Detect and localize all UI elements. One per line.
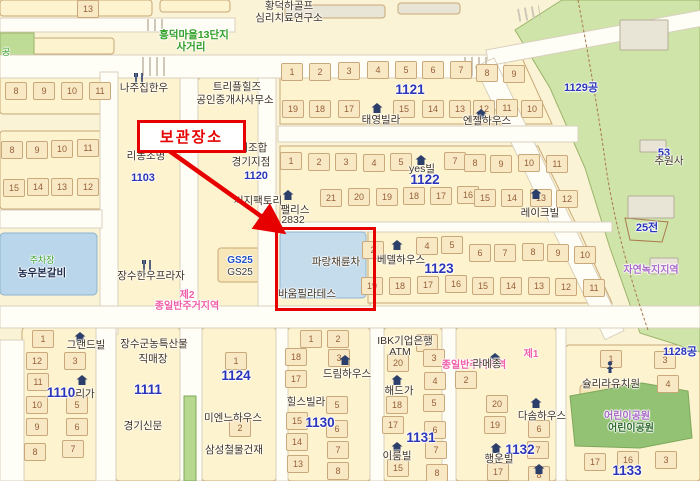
city-block bbox=[398, 3, 460, 14]
parcel-number: 5 bbox=[395, 61, 417, 79]
city-block bbox=[160, 0, 230, 12]
map-canvas[interactable]: 1389101189101115141312123456789191817151… bbox=[0, 0, 700, 481]
parcel-number: 18 bbox=[389, 277, 411, 295]
map-label: 태영빌라 bbox=[362, 115, 401, 126]
house-icon bbox=[392, 237, 403, 255]
parcel-number: 8 bbox=[464, 154, 486, 172]
parcel-number: 17 bbox=[487, 463, 509, 481]
parcel-number: 7 bbox=[62, 440, 84, 458]
parcel-number: 13 bbox=[528, 277, 550, 295]
parcel-number: 17 bbox=[417, 276, 439, 294]
parcel-number: 1 bbox=[281, 63, 303, 81]
map-label: 어린이공원 bbox=[604, 412, 650, 422]
crosswalk bbox=[142, 57, 168, 76]
parcel-number: 13 bbox=[287, 455, 309, 473]
parcel-number: 20 bbox=[348, 188, 370, 206]
map-label: 이룸빌 bbox=[383, 451, 412, 462]
parcel-number: 7 bbox=[450, 61, 472, 79]
map-label: 추원사 bbox=[655, 156, 684, 167]
parcel-number: 5 bbox=[326, 396, 348, 414]
building bbox=[620, 20, 668, 50]
parcel-number: 19 bbox=[282, 100, 304, 118]
map-label: 베델하우스 bbox=[377, 255, 425, 266]
parcel-number: 14 bbox=[27, 178, 49, 196]
parcel-number: 17 bbox=[382, 416, 404, 434]
map-label: 경기지점 bbox=[232, 157, 271, 168]
parcel-number: 3 bbox=[335, 153, 357, 171]
person-icon bbox=[605, 360, 615, 378]
map-label: 나주집한우 bbox=[120, 83, 168, 94]
parcel-number: 11 bbox=[546, 155, 568, 173]
parcel-number: 17 bbox=[285, 370, 307, 388]
map-label: 1122 bbox=[410, 173, 439, 187]
parcel-number: 13 bbox=[51, 178, 73, 196]
parcel-number: 4 bbox=[363, 154, 385, 172]
map-label: 1123 bbox=[424, 262, 453, 276]
map-label: 자연녹지지역 bbox=[623, 266, 678, 276]
parcel-number: 21 bbox=[320, 189, 342, 207]
map-label: 1103 bbox=[131, 173, 155, 184]
parcel-number: 3 bbox=[64, 352, 86, 370]
parcel-number: 7 bbox=[444, 152, 466, 170]
map-label: 농우본갈비 bbox=[18, 268, 66, 279]
house-icon bbox=[531, 186, 542, 204]
parcel-number: 17 bbox=[584, 453, 606, 471]
parcel-number: 10 bbox=[26, 396, 48, 414]
parcel-number: 7 bbox=[327, 441, 349, 459]
parcel-number: 2 bbox=[309, 63, 331, 81]
parcel-number: 3 bbox=[655, 451, 677, 469]
parcel-number: 15 bbox=[3, 179, 25, 197]
map-label: 1128공 bbox=[663, 347, 697, 358]
map-label: 삼성철물건재 bbox=[205, 445, 263, 456]
map-label: 사거리 bbox=[177, 42, 206, 53]
map-label: 레이크빌 bbox=[521, 208, 560, 219]
building bbox=[628, 196, 674, 218]
parcel-number: 14 bbox=[500, 277, 522, 295]
parcel-number: 19 bbox=[484, 416, 506, 434]
map-label: 미엔느하우스 bbox=[204, 413, 262, 424]
parcel-number: 14 bbox=[422, 100, 444, 118]
map-label: 1124 bbox=[221, 369, 250, 383]
map-label: 다솜하우스 bbox=[518, 411, 566, 422]
parcel-number: 10 bbox=[521, 100, 543, 118]
map-label: 슐리라유치원 bbox=[582, 379, 640, 390]
parcel-number: 2 bbox=[455, 371, 477, 389]
city-block bbox=[0, 0, 152, 16]
road bbox=[258, 78, 276, 306]
parcel-number: 8 bbox=[476, 64, 498, 82]
parcel-number: 8 bbox=[522, 243, 544, 261]
map-label: 흥덕마을13단지 bbox=[159, 30, 229, 41]
map-label: 라메종 bbox=[473, 359, 502, 370]
parcel-number: 16 bbox=[445, 275, 467, 293]
parcel-number: 4 bbox=[416, 237, 438, 255]
map-label: 장수한우프라자 bbox=[117, 271, 185, 282]
road bbox=[100, 72, 118, 334]
highlighted-building-frame bbox=[275, 227, 376, 311]
storage-location-label: 보관장소 bbox=[160, 126, 223, 147]
map-label: 공인중개사사무소 bbox=[196, 95, 273, 106]
map-label: 주차장 bbox=[30, 256, 55, 265]
parcel-number: 10 bbox=[518, 154, 540, 172]
parcel-number: 9 bbox=[503, 65, 525, 83]
parcel-number: 11 bbox=[583, 279, 605, 297]
parcel-number: 8 bbox=[426, 464, 448, 481]
parcel-number: 12 bbox=[26, 352, 48, 370]
parcel-number: 18 bbox=[309, 100, 331, 118]
parcel-number: 8 bbox=[5, 82, 27, 100]
parcel-number: 6 bbox=[528, 420, 550, 438]
map-label: 어린이공원 bbox=[608, 424, 654, 434]
map-label: 1111 bbox=[134, 383, 162, 397]
parcel-number: 6 bbox=[66, 418, 88, 436]
storage-location-callout: 보관장소 bbox=[137, 120, 246, 153]
parcel-number: 14 bbox=[286, 433, 308, 451]
map-label: 경기신문 bbox=[124, 421, 163, 432]
parcel-number: 10 bbox=[51, 140, 73, 158]
map-label: 드림하우스 bbox=[323, 369, 371, 380]
map-label: 1129공 bbox=[564, 83, 598, 94]
parcel-number: 11 bbox=[77, 139, 99, 157]
parcel-number: 2 bbox=[327, 330, 349, 348]
map-label: 제1 bbox=[524, 350, 539, 360]
map-label: 장수군농특산물 bbox=[120, 339, 188, 350]
map-label: 제2 bbox=[180, 291, 195, 301]
parcel-number: 8 bbox=[1, 141, 23, 159]
parcel-number: 15 bbox=[472, 277, 494, 295]
parcel-number: 3 bbox=[338, 62, 360, 80]
map-label: 25전 bbox=[636, 223, 658, 234]
map-label: 황덕하골프 bbox=[265, 1, 313, 12]
parcel-number: 12 bbox=[555, 278, 577, 296]
parcel-number: 17 bbox=[338, 100, 360, 118]
map-label: 1131 bbox=[406, 431, 435, 445]
road bbox=[0, 340, 24, 481]
road bbox=[556, 328, 566, 481]
parcel-number: 20 bbox=[486, 395, 508, 413]
map-label: 씨지팩토리 bbox=[234, 196, 282, 207]
parcel-number: 7 bbox=[494, 244, 516, 262]
parcel-number: 11 bbox=[89, 82, 111, 100]
parcel-number: 9 bbox=[26, 141, 48, 159]
parcel-number: 13 bbox=[77, 0, 99, 18]
map-label: 종일반주거지역 bbox=[155, 302, 219, 312]
parcel-number: 18 bbox=[285, 348, 307, 366]
parcel-number: 14 bbox=[501, 189, 523, 207]
parcel-number: 19 bbox=[376, 188, 398, 206]
house-icon bbox=[283, 187, 294, 205]
map-label: 1130 bbox=[305, 416, 334, 430]
park-area bbox=[184, 396, 196, 481]
map-label: 행운빌 bbox=[485, 454, 514, 465]
map-label: 1110 bbox=[47, 386, 76, 400]
map-label: 공 bbox=[2, 48, 10, 57]
map-label: IBK기업은행 bbox=[377, 336, 433, 347]
map-label: 그랜드빌 bbox=[67, 340, 106, 351]
parcel-number: 10 bbox=[61, 82, 83, 100]
parcel-number: 10 bbox=[574, 246, 596, 264]
parcel-number: 9 bbox=[26, 418, 48, 436]
house-icon bbox=[534, 461, 545, 479]
map-label: 1121 bbox=[395, 83, 424, 97]
parcel-number: 11 bbox=[27, 373, 49, 391]
parcel-number: 9 bbox=[547, 244, 569, 262]
parcel-number: 4 bbox=[657, 375, 679, 393]
parcel-number: 6 bbox=[422, 61, 444, 79]
parcel-number: 9 bbox=[490, 155, 512, 173]
map-label: 심리치료연구소 bbox=[255, 13, 323, 24]
parcel-number: 17 bbox=[430, 187, 452, 205]
map-label: GS25 bbox=[227, 268, 253, 278]
map-label: 트리플힐즈 bbox=[213, 82, 261, 93]
parcel-number: 8 bbox=[327, 462, 349, 480]
map-label: ATM bbox=[389, 347, 410, 358]
map-label: 힐스빌라 bbox=[287, 397, 326, 408]
parcel-number: 5 bbox=[423, 394, 445, 412]
parcel-number: 1 bbox=[280, 152, 302, 170]
parcel-number: 9 bbox=[33, 82, 55, 100]
map-label: GS25 bbox=[227, 256, 253, 266]
city-block bbox=[202, 328, 276, 481]
parcel-number: 5 bbox=[441, 236, 463, 254]
parcel-number: 15 bbox=[474, 189, 496, 207]
parcel-number: 2 bbox=[308, 153, 330, 171]
parcel-number: 1 bbox=[300, 330, 322, 348]
parcel-number: 12 bbox=[77, 178, 99, 196]
parcel-number: 18 bbox=[403, 187, 425, 205]
map-label: 리가 bbox=[75, 389, 94, 400]
map-label: 엔젤하우스 bbox=[463, 116, 511, 127]
road bbox=[278, 126, 578, 142]
map-label: 2832 bbox=[281, 215, 304, 226]
parcel-number: 8 bbox=[24, 443, 46, 461]
parcel-number: 1 bbox=[32, 330, 54, 348]
map-label: 1120 bbox=[244, 171, 268, 182]
road bbox=[0, 210, 102, 228]
parcel-number: 4 bbox=[424, 372, 446, 390]
parcel-number: 12 bbox=[556, 190, 578, 208]
parcel-number: 18 bbox=[386, 396, 408, 414]
parcel-number: 4 bbox=[367, 61, 389, 79]
map-label: 직매장 bbox=[139, 354, 168, 365]
city-block bbox=[116, 328, 180, 481]
map-label: 1133 bbox=[612, 464, 641, 478]
parcel-number: 6 bbox=[469, 244, 491, 262]
map-label: 해드가 bbox=[385, 386, 414, 397]
